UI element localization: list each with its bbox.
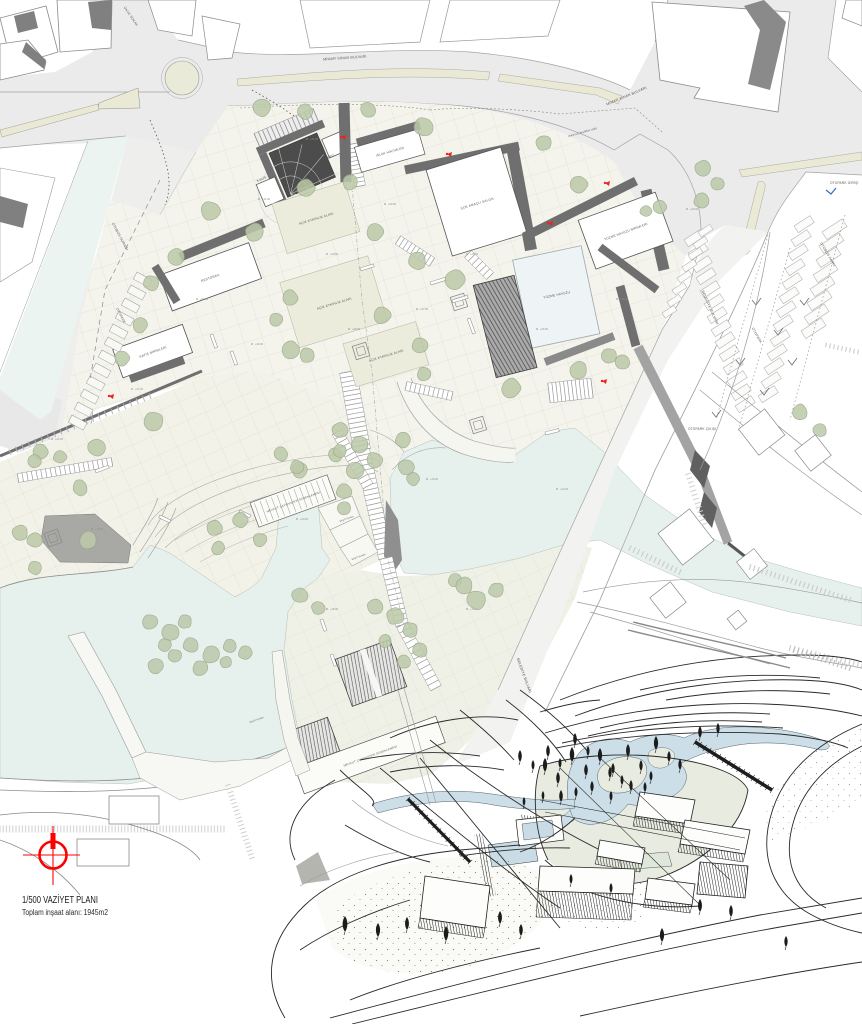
svg-text:+29.00: +29.00 xyxy=(388,202,397,206)
svg-text:+30.00: +30.00 xyxy=(255,342,264,346)
svg-text:Toplam inşaat alanı: 1945m2: Toplam inşaat alanı: 1945m2 xyxy=(22,908,108,917)
svg-text:+23.00: +23.00 xyxy=(55,437,64,441)
svg-text:+31.00: +31.00 xyxy=(200,297,209,301)
svg-text:+31.00: +31.00 xyxy=(310,137,319,141)
svg-text:+20.00: +20.00 xyxy=(560,487,569,491)
svg-text:+28.00: +28.00 xyxy=(470,252,479,256)
svg-text:+18.00: +18.00 xyxy=(330,607,339,611)
svg-text:+27.00: +27.00 xyxy=(135,387,144,391)
svg-text:+27.00: +27.00 xyxy=(420,307,429,311)
svg-text:+25.00: +25.00 xyxy=(620,297,629,301)
svg-text:OTOPARK GİRİŞİ: OTOPARK GİRİŞİ xyxy=(830,180,859,185)
svg-text:+28.00: +28.00 xyxy=(352,327,361,331)
svg-text:+31.00: +31.00 xyxy=(262,197,271,201)
svg-text:1/500 VAZİYET PLANI: 1/500 VAZİYET PLANI xyxy=(22,893,98,906)
svg-text:+28.00: +28.00 xyxy=(690,207,699,211)
svg-text:+19.00: +19.00 xyxy=(95,527,104,531)
svg-text:+20.00: +20.00 xyxy=(300,517,309,521)
svg-text:+29.50: +29.50 xyxy=(330,252,339,256)
svg-text:OTOPARK ÇIKIŞI: OTOPARK ÇIKIŞI xyxy=(688,427,716,431)
svg-text:+26.50: +26.50 xyxy=(540,327,549,331)
svg-text:+19.00: +19.00 xyxy=(430,477,439,481)
